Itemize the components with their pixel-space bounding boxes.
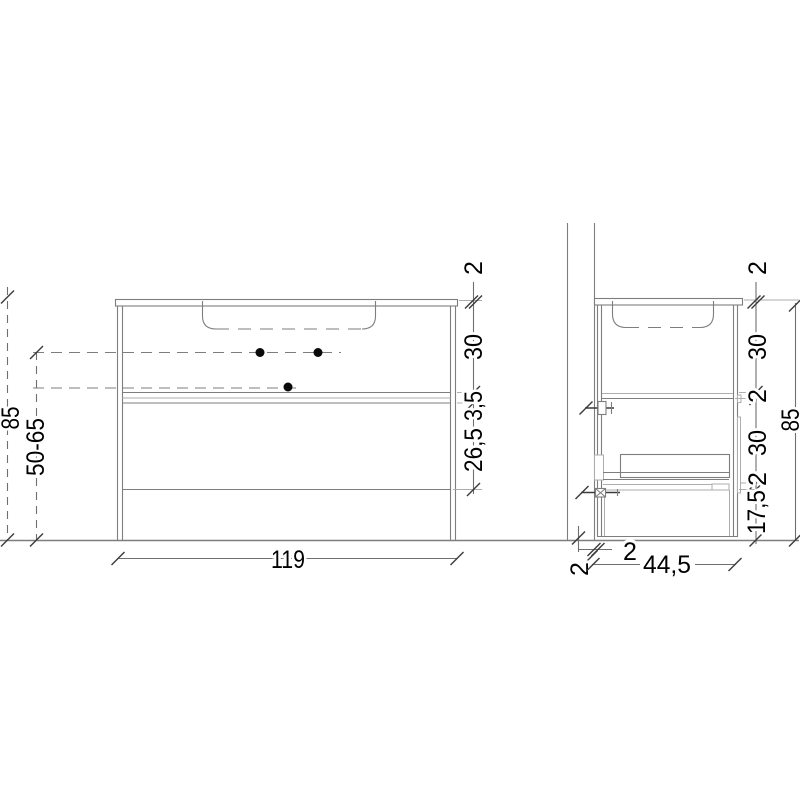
side-depth-label: 44,5 [643,551,691,579]
side-view [568,223,743,540]
side-height-label: 85 [777,409,800,432]
front-drawer2-dim: 26,5 [460,428,488,472]
vanity-technical-drawing: 85 50-65 119 2 30 3,5 26,5 [0,0,800,800]
front-gap-dim: 3,5 [460,391,488,421]
side-countertop-dim: 2 [744,261,772,275]
front-countertop [116,300,458,307]
technical-drawing-page: 85 50-65 119 2 30 3,5 26,5 [0,0,800,800]
side-drawer-box [595,455,730,491]
back-rail [595,455,604,480]
side-countertop [595,299,743,306]
wall-bracket-lower [576,486,621,499]
front-view [33,300,458,541]
drawer-front-edge [738,417,741,493]
side-shelf-dim: 2 [744,389,772,403]
mounting-hole-dot [284,383,293,392]
install-height-label: 50-65 [22,418,50,476]
dimensions-front: 85 50-65 119 2 30 3,5 26,5 [0,261,488,574]
side-carcass [598,305,742,537]
side-clearance-dim: 17,5 [743,490,771,534]
front-drawer1-dim: 30 [460,334,488,360]
side-wall-offset-dim: 2 [566,562,594,576]
mounting-hole-dot [314,348,323,357]
mounting-hole-dot [256,348,265,357]
front-countertop-dim: 2 [460,261,488,275]
side-basin-dim: 30 [744,334,772,360]
front-carcass [118,306,456,540]
side-bottom-dim: 2 [744,472,772,486]
slide-end-block [712,484,729,490]
front-mounting-lines [33,348,341,392]
side-drawer-dim: 30 [744,430,772,456]
side-wall-gap-dim: 2 [623,538,637,566]
wall-bracket-upper [580,402,615,415]
front-width-label: 119 [271,546,305,574]
